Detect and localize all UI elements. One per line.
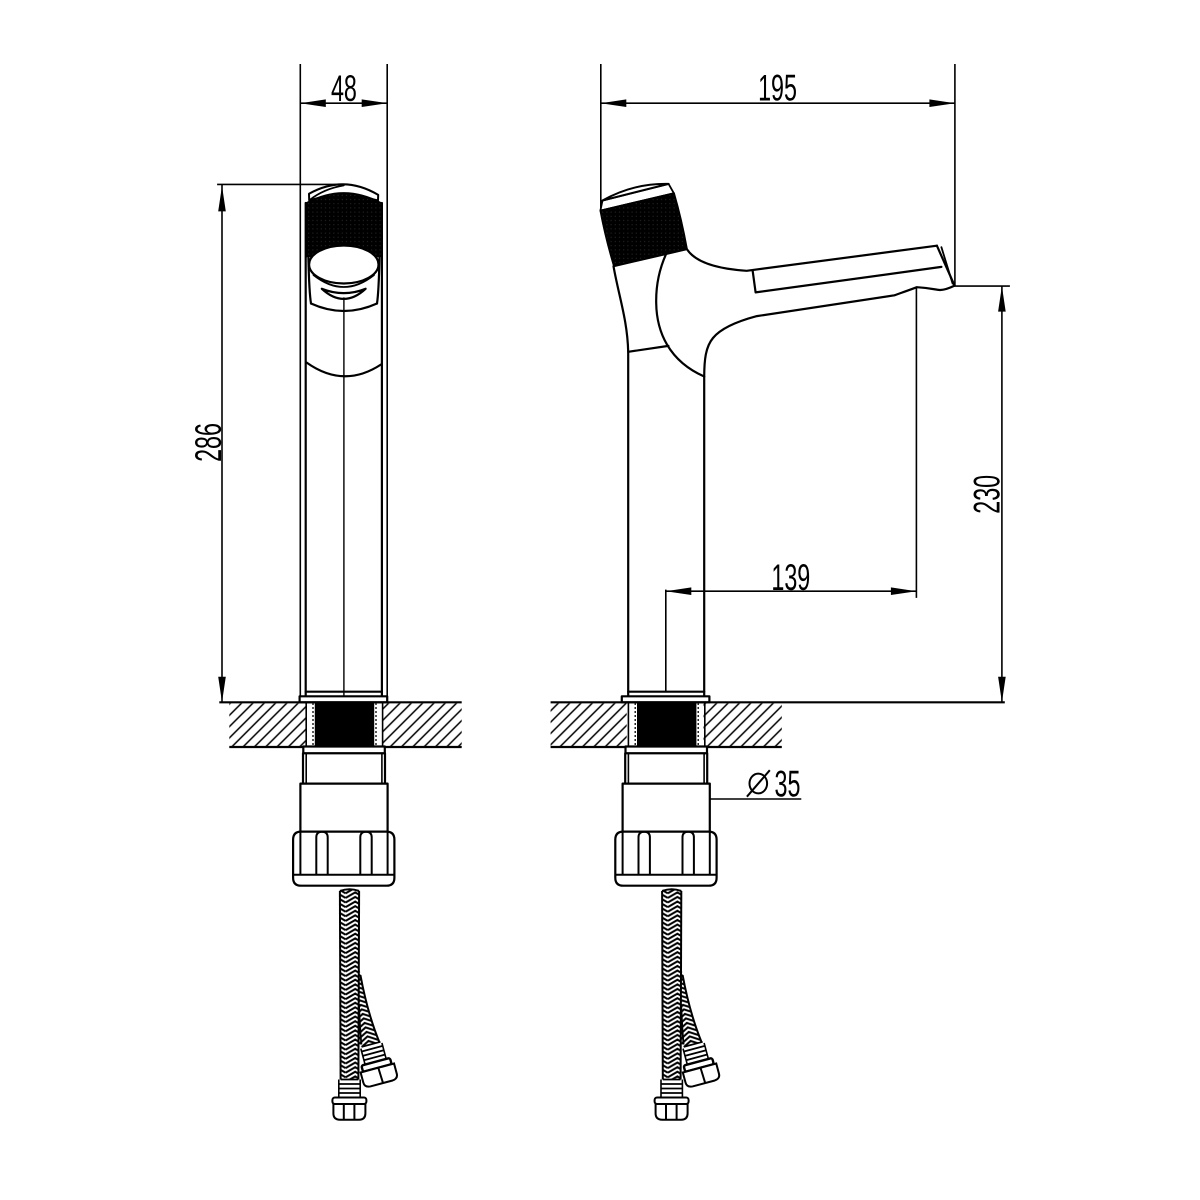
svg-text:195: 195: [758, 67, 797, 109]
svg-text:48: 48: [331, 67, 357, 109]
svg-text:139: 139: [771, 556, 810, 598]
svg-text:286: 286: [187, 423, 229, 462]
svg-text:230: 230: [966, 475, 1008, 514]
svg-text:35: 35: [775, 763, 801, 805]
